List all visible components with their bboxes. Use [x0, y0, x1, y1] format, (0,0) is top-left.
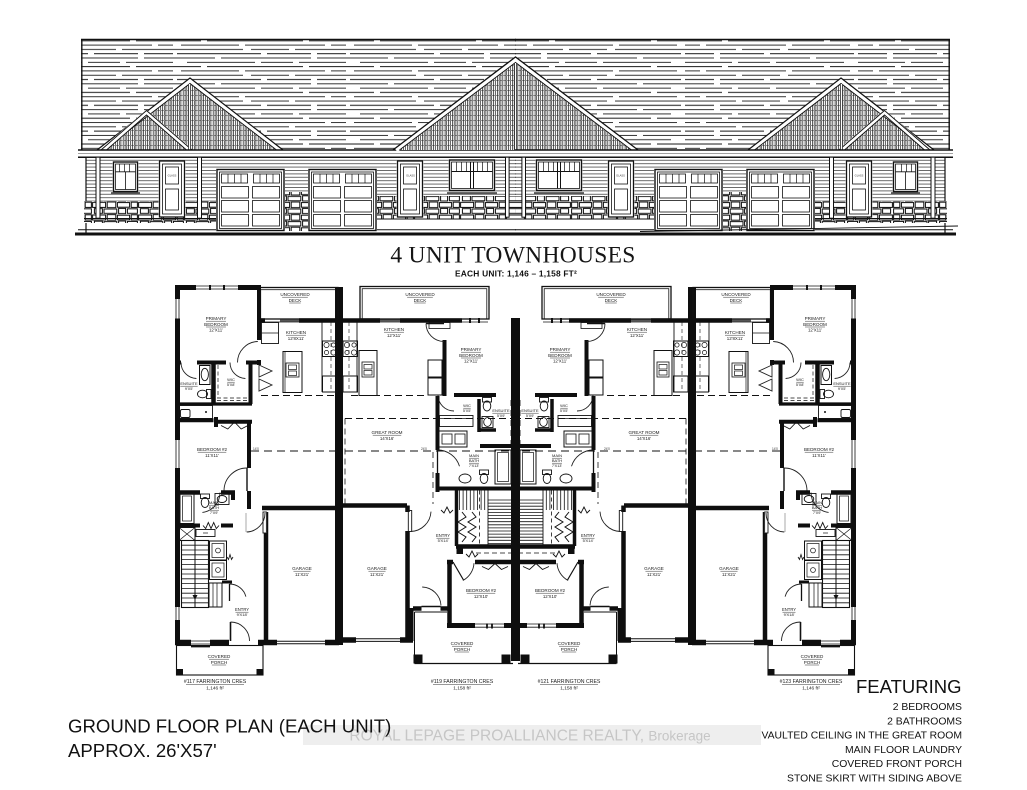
svg-text:KITCHEN: KITCHEN	[286, 330, 306, 335]
svg-text:ROYAL LEPAGE PROALLIANCE REALT: ROYAL LEPAGE PROALLIANCE REALTY, Brokera…	[349, 728, 710, 745]
svg-text:5'X9': 5'X9'	[497, 414, 505, 418]
svg-text:BEDROOM: BEDROOM	[548, 353, 572, 358]
svg-text:24'0: 24'0	[421, 447, 427, 451]
svg-text:ENSUITE: ENSUITE	[492, 408, 510, 413]
svg-text:5'X8': 5'X8'	[227, 383, 235, 387]
svg-text:1,158 ft²: 1,158 ft²	[560, 686, 578, 692]
svg-text:12'X11': 12'X11'	[209, 328, 223, 333]
svg-text:BEDROOM: BEDROOM	[459, 353, 483, 358]
svg-text:12'8X11': 12'8X11'	[288, 336, 305, 341]
svg-text:PRIMARY: PRIMARY	[206, 316, 227, 321]
svg-text:ENSUITE: ENSUITE	[521, 408, 539, 413]
svg-text:FEATURING: FEATURING	[856, 676, 962, 697]
svg-text:GARAGE: GARAGE	[292, 566, 312, 571]
svg-text:WIC: WIC	[227, 377, 235, 382]
svg-text:12'X11': 12'X11'	[387, 333, 401, 338]
svg-text:EACH UNIT: 1,146 – 1,158 F: EACH UNIT: 1,146 – 1,158 FT²	[455, 269, 577, 279]
svg-text:12'X11': 12'X11'	[553, 359, 567, 364]
svg-text:PRIMARY: PRIMARY	[550, 347, 571, 352]
svg-text:GREAT ROOM: GREAT ROOM	[372, 430, 403, 435]
svg-text:2 BEDROOMS: 2 BEDROOMS	[893, 702, 962, 713]
svg-text:DECK: DECK	[730, 298, 744, 303]
svg-text:#121 FARRINGTON CRES: #121 FARRINGTON CRES	[538, 679, 601, 685]
svg-text:BEDROOM #2: BEDROOM #2	[197, 447, 228, 452]
svg-text:COVERED: COVERED	[801, 654, 824, 659]
svg-text:PRIMARY: PRIMARY	[805, 316, 826, 321]
svg-text:DECK: DECK	[289, 298, 303, 303]
svg-text:BATH: BATH	[469, 458, 479, 463]
svg-text:24'0: 24'0	[604, 447, 610, 451]
svg-text:KITCHEN: KITCHEN	[725, 330, 745, 335]
svg-text:11'X21': 11'X21'	[722, 572, 736, 577]
svg-text:11'X11': 11'X11'	[205, 453, 219, 458]
svg-text:BATH: BATH	[209, 505, 219, 510]
svg-text:11'X21': 11'X21'	[647, 572, 661, 577]
svg-text:WIC: WIC	[463, 403, 471, 408]
svg-text:9'X5': 9'X5'	[185, 387, 193, 391]
svg-text:BEDROOM: BEDROOM	[204, 322, 228, 327]
svg-text:12'X11': 12'X11'	[808, 328, 822, 333]
svg-text:BATH: BATH	[552, 458, 562, 463]
svg-text:BEDROOM: BEDROOM	[803, 322, 827, 327]
svg-text:BEDROOM #2: BEDROOM #2	[535, 588, 566, 593]
svg-text:5'X9': 5'X9'	[526, 414, 534, 418]
svg-text:GARAGE: GARAGE	[719, 566, 739, 571]
svg-text:ENSUITE: ENSUITE	[833, 381, 851, 386]
svg-text:12'X10': 12'X10'	[474, 594, 489, 599]
svg-text:2 BATHROOMS: 2 BATHROOMS	[887, 716, 962, 727]
svg-text:PORCH: PORCH	[561, 647, 578, 652]
svg-text:PRIMARY: PRIMARY	[461, 347, 482, 352]
svg-text:5'X14': 5'X14'	[583, 538, 594, 543]
svg-text:#119 FARRINGTON CRES: #119 FARRINGTON CRES	[431, 679, 494, 685]
svg-text:14'0: 14'0	[253, 447, 259, 451]
svg-text:12'X11': 12'X11'	[630, 333, 644, 338]
svg-text:COVERED: COVERED	[451, 641, 474, 646]
svg-text:9'X5': 9'X5'	[838, 387, 846, 391]
svg-text:14'X16': 14'X16'	[380, 436, 395, 441]
svg-text:5'X5': 5'X5'	[560, 409, 568, 413]
svg-text:WIC: WIC	[560, 403, 568, 408]
svg-text:7'X13': 7'X13'	[469, 464, 480, 468]
svg-text:COVERED FRONT PORCH: COVERED FRONT PORCH	[832, 759, 962, 770]
svg-text:UNCOVERED: UNCOVERED	[280, 292, 310, 297]
svg-text:COVERED: COVERED	[558, 641, 581, 646]
svg-text:1,146 ft²: 1,146 ft²	[802, 686, 820, 692]
svg-text:1,146 ft²: 1,146 ft²	[206, 686, 224, 692]
svg-text:GARAGE: GARAGE	[367, 566, 387, 571]
svg-text:UNCOVERED: UNCOVERED	[596, 292, 626, 297]
svg-text:UNCOVERED: UNCOVERED	[721, 292, 751, 297]
svg-text:DECK: DECK	[414, 298, 428, 303]
svg-text:9'X18': 9'X18'	[784, 612, 795, 617]
svg-text:4 UNIT TOWNHOUSES: 4 UNIT TOWNHOUSES	[390, 243, 635, 269]
svg-text:7'X9': 7'X9'	[813, 511, 821, 515]
svg-text:12'X10': 12'X10'	[543, 594, 558, 599]
svg-text:BEDROOM #2: BEDROOM #2	[466, 588, 497, 593]
svg-text:KITCHEN: KITCHEN	[384, 327, 404, 332]
svg-text:VAULTED CEILING IN THE GREAT R: VAULTED CEILING IN THE GREAT ROOM	[761, 731, 962, 742]
svg-text:KITCHEN: KITCHEN	[627, 327, 647, 332]
svg-text:UNCOVERED: UNCOVERED	[405, 292, 435, 297]
svg-text:ENSUITE: ENSUITE	[180, 381, 198, 386]
svg-text:14'0: 14'0	[772, 447, 778, 451]
svg-text:PORCH: PORCH	[804, 660, 821, 665]
svg-text:GLASS: GLASS	[406, 174, 415, 178]
svg-text:GREAT ROOM: GREAT ROOM	[629, 430, 660, 435]
svg-text:GLASS: GLASS	[168, 174, 177, 178]
svg-text:7'X13': 7'X13'	[552, 464, 563, 468]
svg-text:7'X9': 7'X9'	[210, 511, 218, 515]
svg-text:#117 FARRINGTON CRES: #117 FARRINGTON CRES	[184, 679, 247, 685]
svg-text:WIC: WIC	[796, 377, 804, 382]
svg-text:9'X18': 9'X18'	[237, 612, 248, 617]
svg-text:GARAGE: GARAGE	[644, 566, 664, 571]
svg-text:PORCH: PORCH	[454, 647, 471, 652]
svg-text:STONE SKIRT WITH SIDING ABOVE: STONE SKIRT WITH SIDING ABOVE	[787, 774, 962, 785]
svg-text:11'X11': 11'X11'	[812, 453, 826, 458]
svg-text:11'X21': 11'X21'	[370, 572, 384, 577]
svg-text:12'8X11': 12'8X11'	[727, 336, 744, 341]
svg-text:DECK: DECK	[605, 298, 619, 303]
svg-text:BATH: BATH	[812, 505, 822, 510]
svg-text:APPROX. 26'X57': APPROX. 26'X57'	[68, 740, 217, 761]
svg-text:5'X14': 5'X14'	[438, 538, 449, 543]
svg-text:GLASS: GLASS	[616, 174, 625, 178]
svg-text:COVERED: COVERED	[208, 654, 231, 659]
svg-text:11'X21': 11'X21'	[295, 572, 309, 577]
svg-text:5'X5': 5'X5'	[463, 409, 471, 413]
svg-text:MAIN FLOOR LAUNDRY: MAIN FLOOR LAUNDRY	[845, 745, 962, 756]
svg-text:14'X16': 14'X16'	[637, 436, 652, 441]
svg-text:GLASS: GLASS	[855, 174, 864, 178]
svg-text:GROUND FLOOR PLAN (EACH UNIT): GROUND FLOOR PLAN (EACH UNIT)	[68, 716, 391, 737]
svg-text:1,158 ft²: 1,158 ft²	[453, 686, 471, 692]
svg-text:#123 FARRINGTON CRES: #123 FARRINGTON CRES	[780, 679, 843, 685]
svg-text:12'X11': 12'X11'	[464, 359, 478, 364]
svg-text:5'X8': 5'X8'	[796, 383, 804, 387]
svg-text:BEDROOM #2: BEDROOM #2	[804, 447, 835, 452]
svg-text:PORCH: PORCH	[211, 660, 228, 665]
